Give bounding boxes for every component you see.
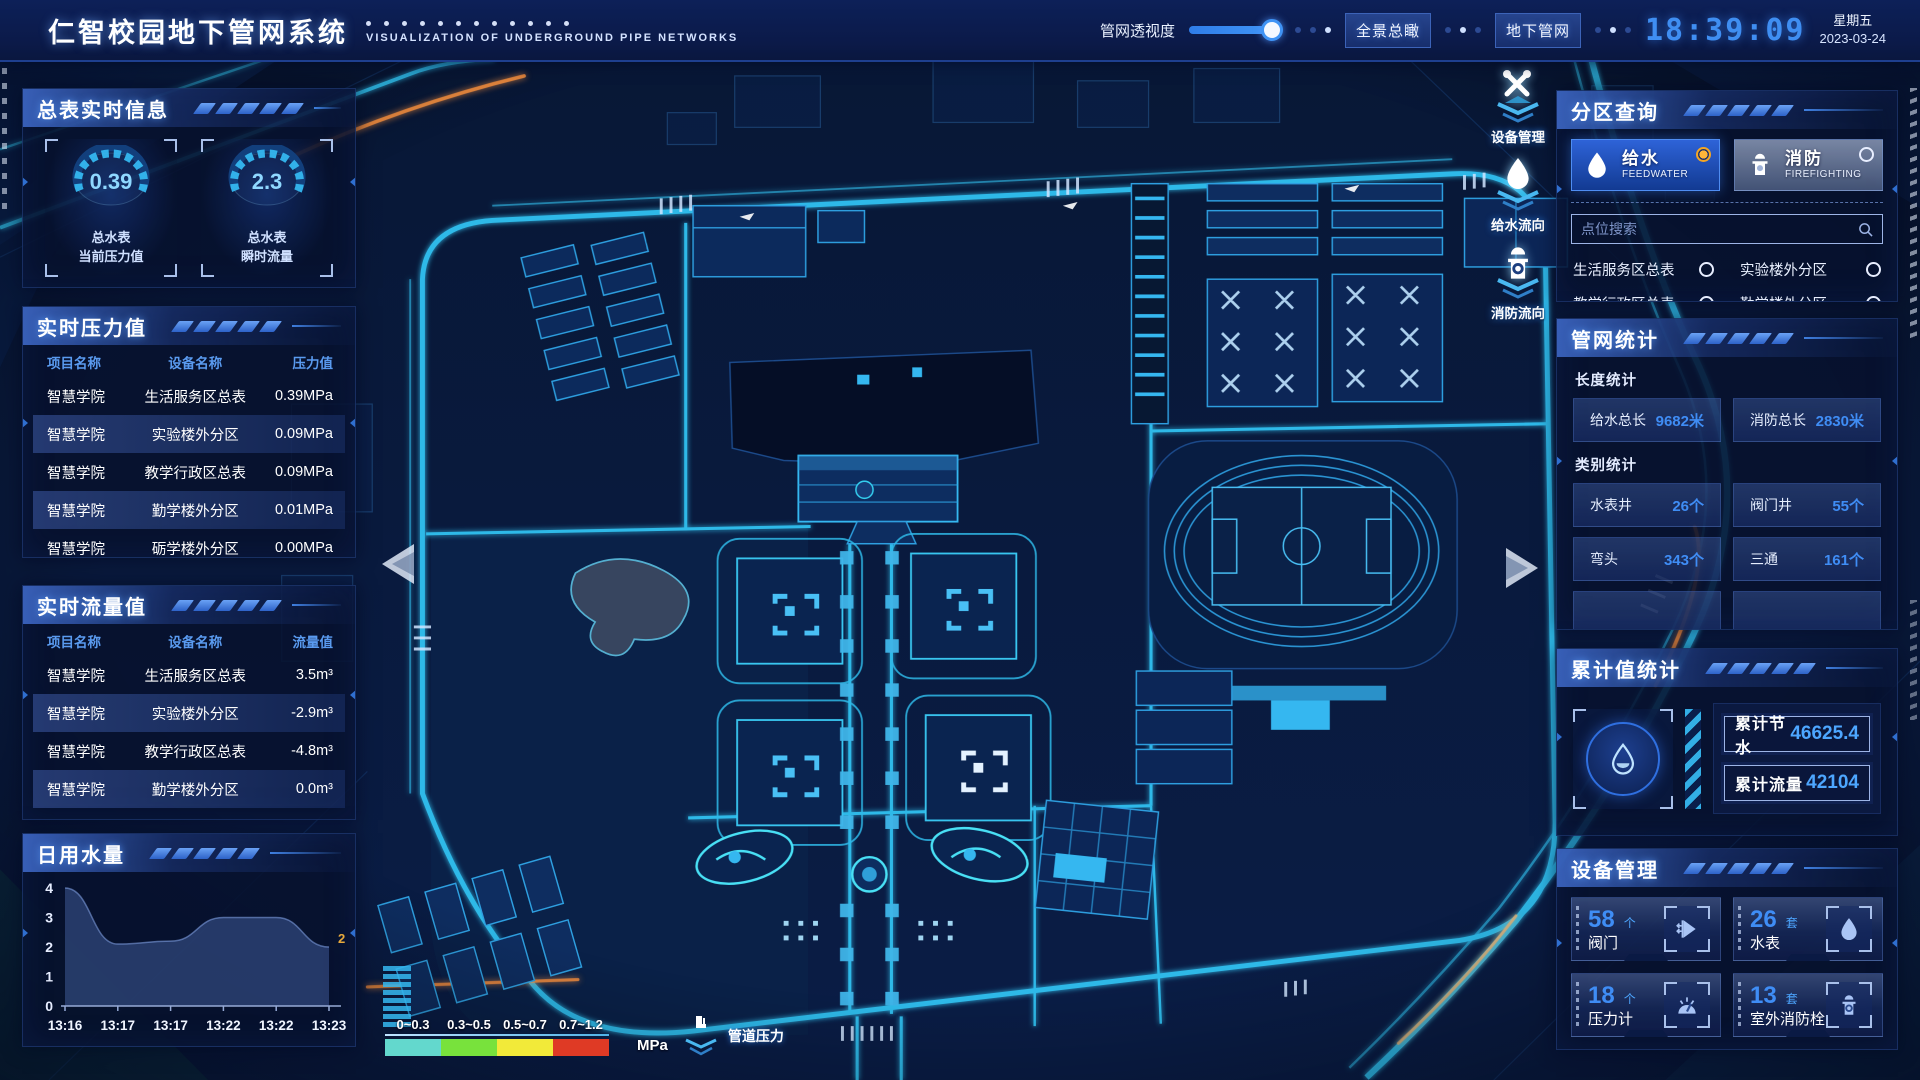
radio-unselected[interactable] xyxy=(1866,296,1881,303)
table-row[interactable]: 智慧学院生活服务区总表0.39MPa xyxy=(33,377,345,415)
svg-text:4: 4 xyxy=(45,880,53,896)
legend-label: 管道压力 xyxy=(728,1026,784,1046)
app-title: 仁智校园地下管网系统 xyxy=(48,11,348,50)
top-header: 仁智校园地下管网系统 VISUALIZATION OF UNDERGROUND … xyxy=(0,0,1920,62)
stat-clipped xyxy=(1733,591,1881,630)
gauge-flow: 2.3 总水表瞬时流量 xyxy=(201,139,333,277)
svg-text:13:22: 13:22 xyxy=(206,1018,241,1033)
slider-fill xyxy=(1189,26,1266,34)
zone-option[interactable]: 实验楼外分区 xyxy=(1740,252,1881,286)
dot-separator xyxy=(1595,27,1631,33)
feedwater-mode-button[interactable]: 给水FEEDWATER xyxy=(1571,139,1720,191)
hydrant-icon xyxy=(1501,244,1535,282)
category-stats-label: 类别统计 xyxy=(1575,454,1897,475)
device-card-water-meters[interactable]: 26套 水表 xyxy=(1733,897,1883,961)
table-row[interactable]: 智慧学院实验楼外分区0.09MPa xyxy=(33,415,345,453)
length-stats-label: 长度统计 xyxy=(1575,369,1897,390)
panel-meter-realtime: 总表实时信息 0.39 总水表当前压力值 2.3 总水表瞬时流量 xyxy=(22,88,356,288)
stat-elbows: 弯头343个 xyxy=(1573,537,1721,581)
underground-pipes-button[interactable]: 地下管网 xyxy=(1495,13,1581,48)
brand: 仁智校园地下管网系统 VISUALIZATION OF UNDERGROUND … xyxy=(48,11,738,50)
svg-text:13:16: 13:16 xyxy=(48,1018,83,1033)
table-row[interactable]: 智慧学院生活服务区总表3.5m³ xyxy=(33,656,345,694)
pressure-table: 项目名称设备名称压力值 智慧学院生活服务区总表0.39MPa 智慧学院实验楼外分… xyxy=(23,345,355,558)
svg-text:13:22: 13:22 xyxy=(259,1018,294,1033)
gauge-pressure: 0.39 总水表当前压力值 xyxy=(45,139,177,277)
table-row[interactable]: 智慧学院砺学楼外分区0.00MPa xyxy=(33,529,345,558)
gauge-dial: 0.39 xyxy=(55,145,167,229)
pipe-opacity-label: 管网透视度 xyxy=(1100,20,1175,41)
legend-colorbar xyxy=(385,1039,609,1056)
water-drop-icon xyxy=(1582,150,1612,180)
stripe-decor xyxy=(1685,709,1701,809)
slash-decor xyxy=(175,321,278,332)
slash-decor xyxy=(1687,333,1790,344)
cumulative-flow: 累计流量42104 xyxy=(1724,765,1870,801)
legend-range: 0~0.3 xyxy=(385,1017,441,1032)
device-management-tool[interactable]: 设备管理 xyxy=(1491,66,1545,146)
stat-fire-length: 消防总长2830米 xyxy=(1733,398,1881,442)
daily-water-chart: 0123413:1613:1713:1713:2213:2213:232 xyxy=(27,874,353,1042)
table-row[interactable]: 智慧学院砺学楼外分区2.3m³ xyxy=(33,808,345,820)
radio-unselected[interactable] xyxy=(1866,262,1881,277)
flow-table: 项目名称设备名称流量值 智慧学院生活服务区总表3.5m³ 智慧学院实验楼外分区-… xyxy=(23,624,355,820)
title-dots-decor xyxy=(366,21,738,26)
wrench-icon xyxy=(1497,66,1539,106)
panel-title: 分区查询 xyxy=(1571,96,1659,125)
table-row[interactable]: 智慧学院勤学楼外分区0.0m³ xyxy=(33,770,345,808)
slash-decor xyxy=(197,103,300,114)
svg-text:0: 0 xyxy=(45,998,53,1014)
radio-unselected[interactable] xyxy=(1699,296,1714,303)
svg-text:13:17: 13:17 xyxy=(153,1018,188,1033)
panel-device-management: 设备管理 58个 阀门 26套 水表 18个 压力计 13套 室外消防栓 xyxy=(1556,848,1898,1050)
radio-selected[interactable] xyxy=(1696,147,1711,162)
dashed-divider xyxy=(1571,202,1883,203)
zone-options: 生活服务区总表 实验楼外分区 教学行政区总表 勤学楼外分区 砺学楼外分区 宿舍区… xyxy=(1557,244,1897,302)
slash-decor xyxy=(175,600,278,611)
device-card-pressure-gauges[interactable]: 18个 压力计 xyxy=(1571,973,1721,1037)
svg-text:0.39: 0.39 xyxy=(90,169,133,194)
pipe-pressure-icon[interactable] xyxy=(684,1014,718,1056)
legend-range: 0.3~0.5 xyxy=(441,1017,497,1032)
svg-text:2: 2 xyxy=(338,931,345,946)
legend-range: 0.5~0.7 xyxy=(497,1017,553,1032)
pressure-gauge-icon xyxy=(1664,982,1710,1028)
slash-decor xyxy=(153,848,256,859)
radio-unselected[interactable] xyxy=(1859,147,1874,162)
carousel-left-arrow[interactable] xyxy=(374,542,416,591)
table-row[interactable]: 智慧学院教学行政区总表-4.8m³ xyxy=(33,732,345,770)
point-search-input[interactable] xyxy=(1581,221,1850,237)
panel-title: 累计值统计 xyxy=(1571,654,1681,683)
cumulative-saved-water: 累计节水46625.4 xyxy=(1724,716,1870,752)
pipe-opacity-slider[interactable] xyxy=(1189,26,1281,34)
panel-network-stats: 管网统计 长度统计 给水总长9682米 消防总长2830米 类别统计 水表井26… xyxy=(1556,318,1898,630)
slider-thumb[interactable] xyxy=(1261,19,1283,41)
panel-title: 总表实时信息 xyxy=(37,94,169,123)
firefighting-mode-button[interactable]: 消防FIREFIGHTING xyxy=(1734,139,1883,191)
panel-title: 日用水量 xyxy=(37,839,125,868)
dot-separator xyxy=(1445,27,1481,33)
slash-decor xyxy=(1687,105,1790,116)
fire-flow-tool[interactable]: 消防流向 xyxy=(1491,244,1545,322)
stat-valve-wells: 阀门井55个 xyxy=(1733,483,1881,527)
table-header: 项目名称设备名称流量值 xyxy=(33,626,345,656)
slash-decor xyxy=(1709,663,1812,674)
weekday: 星期五 xyxy=(1833,12,1872,30)
carousel-right-arrow[interactable] xyxy=(1504,546,1546,595)
valve-icon xyxy=(1664,906,1710,952)
hydrant-icon xyxy=(1826,982,1872,1028)
svg-text:13:23: 13:23 xyxy=(312,1018,347,1033)
stat-clipped xyxy=(1573,591,1721,630)
date: 2023-03-24 xyxy=(1820,30,1887,48)
svg-text:2: 2 xyxy=(45,939,53,955)
hydrant-icon xyxy=(1745,150,1775,180)
slash-decor xyxy=(1687,863,1790,874)
panel-title: 设备管理 xyxy=(1571,854,1659,883)
panel-title: 实时流量值 xyxy=(37,591,147,620)
app-subtitle: VISUALIZATION OF UNDERGROUND PIPE NETWOR… xyxy=(366,32,738,44)
panel-realtime-flow: 实时流量值 项目名称设备名称流量值 智慧学院生活服务区总表3.5m³ 智慧学院实… xyxy=(22,585,356,820)
gauge-dial: 2.3 xyxy=(211,145,323,229)
panel-zone-query: 分区查询 给水FEEDWATER 消防FIREFIGHTING 生活服务区总表 … xyxy=(1556,90,1898,302)
stat-tees: 三通161个 xyxy=(1733,537,1881,581)
svg-text:1: 1 xyxy=(45,969,53,985)
gauge-label: 总水表瞬时流量 xyxy=(241,229,293,267)
map-tools-column: 设备管理 给水流向 消防流向 xyxy=(1478,66,1558,332)
legend-line xyxy=(385,1034,609,1036)
zone-option[interactable]: 生活服务区总表 xyxy=(1573,252,1714,286)
panel-cumulative-totals: 累计值统计 累计节水46625.4 累计流量42104 xyxy=(1556,648,1898,836)
tool-label: 消防流向 xyxy=(1491,302,1545,322)
legend-unit: MPa xyxy=(637,1037,668,1054)
panel-title: 实时压力值 xyxy=(37,312,147,341)
zone-option[interactable]: 勤学楼外分区 xyxy=(1740,286,1881,302)
search-box[interactable] xyxy=(1571,214,1883,244)
feedwater-flow-tool[interactable]: 给水流向 xyxy=(1491,156,1545,234)
water-meter-icon xyxy=(1826,906,1872,952)
overview-button[interactable]: 全景总瞰 xyxy=(1345,13,1431,48)
gauge-label: 总水表当前压力值 xyxy=(78,229,143,267)
panel-title: 管网统计 xyxy=(1571,324,1659,353)
panel-realtime-pressure: 实时压力值 项目名称设备名称压力值 智慧学院生活服务区总表0.39MPa 智慧学… xyxy=(22,306,356,558)
zone-option[interactable]: 教学行政区总表 xyxy=(1573,286,1714,302)
stat-water-meter-wells: 水表井26个 xyxy=(1573,483,1721,527)
device-card-outdoor-hydrants[interactable]: 13套 室外消防栓 xyxy=(1733,973,1883,1037)
svg-text:3: 3 xyxy=(45,910,53,926)
search-icon[interactable] xyxy=(1858,222,1873,237)
water-drop-icon xyxy=(1586,722,1660,796)
table-row[interactable]: 智慧学院实验楼外分区-2.9m³ xyxy=(33,694,345,732)
radio-unselected[interactable] xyxy=(1699,262,1714,277)
dot-separator xyxy=(1295,27,1331,33)
svg-text:13:17: 13:17 xyxy=(101,1018,136,1033)
stat-feedwater-length: 给水总长9682米 xyxy=(1573,398,1721,442)
water-drop-icon xyxy=(1501,156,1535,194)
table-row[interactable]: 智慧学院教学行政区总表0.09MPa xyxy=(33,453,345,491)
pressure-legend: 0~0.3 0.3~0.5 0.5~0.7 0.7~1.2 MPa 管道压力 xyxy=(385,1014,784,1056)
water-badge xyxy=(1573,709,1673,809)
tool-label: 给水流向 xyxy=(1491,214,1545,234)
legend-range: 0.7~1.2 xyxy=(553,1017,609,1032)
panel-daily-water: 日用水量 0123413:1613:1713:1713:2213:2213:23… xyxy=(22,833,356,1047)
svg-text:2.3: 2.3 xyxy=(252,169,283,194)
clock: 18:39:09 xyxy=(1645,13,1806,48)
table-row[interactable]: 智慧学院勤学楼外分区0.01MPa xyxy=(33,491,345,529)
tool-label: 设备管理 xyxy=(1491,126,1545,146)
table-header: 项目名称设备名称压力值 xyxy=(33,347,345,377)
device-card-valves[interactable]: 58个 阀门 xyxy=(1571,897,1721,961)
